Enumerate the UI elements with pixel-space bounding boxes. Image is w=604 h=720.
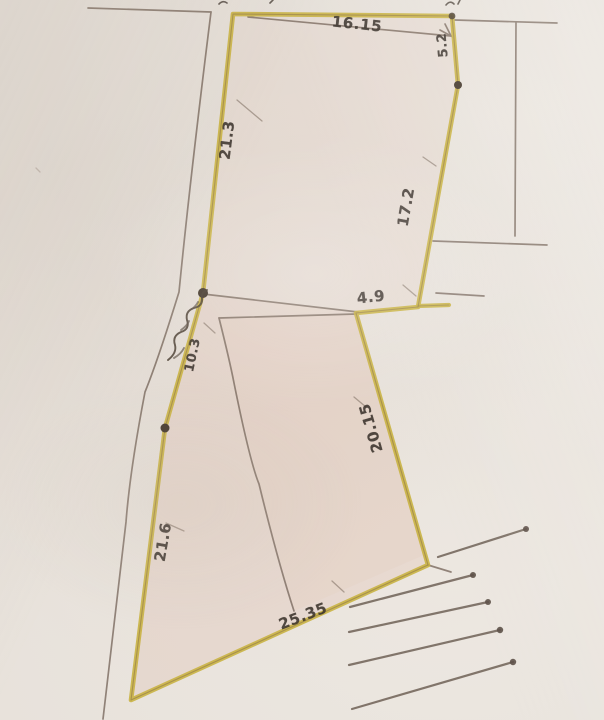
stray-pencil-speck [36,168,40,172]
neighbor-right-short-line [436,293,484,296]
neighbor-right-top-line [455,20,557,23]
road-hatch-end-dot [497,627,503,633]
road-hatch-line [349,602,488,632]
survey-point-left [161,424,170,433]
cutoff-mark-4 [458,0,460,4]
survey-point-right [454,81,462,89]
survey-sketch-page: 16.15 5.2 21.3 17.2 4.9 10.3 20.15 21.6 … [0,0,604,720]
road-hatch-end-dot [510,659,516,665]
road-hatch-end-dot [523,526,529,532]
measurement-upper-right-edge: 5.2 [434,32,451,58]
road-hatch-line [352,662,513,709]
road-hatch-line [349,630,500,665]
neighbor-right-mid-line [433,241,547,245]
neighbor-right-vertical-line [515,22,516,236]
road-hatch-end-dot [470,572,476,578]
road-hatch-end-dot [485,599,491,605]
corner-extension-line [428,565,451,572]
road-hatch-line [438,529,526,557]
measurement-junction-segment: 4.9 [356,287,386,308]
cutoff-mark-1 [219,2,227,4]
survey-point-top-right-corner [449,13,456,20]
cutoff-mark-2 [270,0,273,3]
cutoff-mark-3 [446,2,454,5]
neighbor-top-left-line [88,8,211,12]
